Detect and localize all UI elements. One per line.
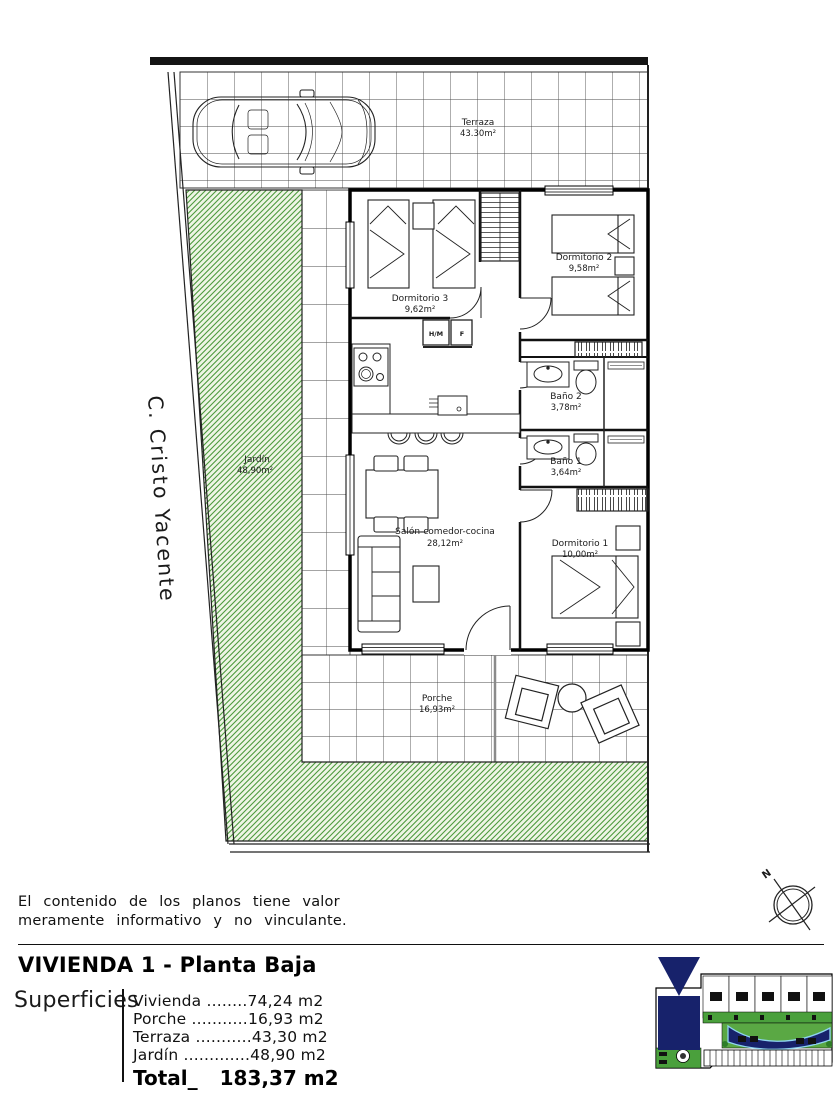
dorm3-area: 9,62m² — [405, 305, 436, 315]
street-label: C. Cristo Yacente — [143, 395, 180, 603]
porche-label: Porche — [422, 694, 453, 704]
floor-plan-svg: Terraza 43.30m² Dormitorio 3 9,62m² Dorm… — [0, 0, 840, 950]
disclaimer: El contenido de los planos tiene valor m… — [18, 893, 347, 931]
dorm1-label: Dormitorio 1 — [552, 539, 609, 549]
jardin-label: Jardín — [243, 455, 270, 465]
surface-row: Porche ...........16,93 m2 — [133, 1010, 328, 1028]
surfaces-divider-bar — [122, 989, 124, 1082]
salon-label: Salón-comedor-cocina — [395, 526, 495, 537]
surface-row: Jardín .............48,90 m2 — [133, 1046, 328, 1064]
compass-icon: N — [760, 868, 815, 930]
compass-n-label: N — [760, 868, 773, 882]
disclaimer-line2: meramente informativo y no vinculante. — [18, 912, 347, 931]
highlighted-unit — [658, 996, 700, 1050]
floor-plan: Terraza 43.30m² Dormitorio 3 9,62m² Dorm… — [0, 0, 840, 954]
surface-row: Vivienda ........74,24 m2 — [133, 992, 328, 1010]
bano1-area: 3,64m² — [551, 468, 582, 478]
dorm2-area: 9,58m² — [569, 264, 600, 274]
bano2-area: 3,78m² — [551, 403, 582, 413]
total-row: Total_183,37 m2 — [133, 1066, 339, 1090]
surfaces-heading: Superficies — [14, 988, 139, 1013]
dorm1-area: 10,00m² — [562, 550, 598, 560]
divider-line — [18, 944, 824, 945]
dorm2-label: Dormitorio 2 — [556, 253, 613, 263]
jardin-area: 48,90m² — [237, 466, 273, 476]
surface-row: Terraza ...........43,30 m2 — [133, 1028, 328, 1046]
walkway-tiles — [302, 190, 350, 655]
total-value: 183,37 m2 — [220, 1066, 339, 1090]
dorm3-label: Dormitorio 3 — [392, 294, 449, 304]
terraza-tiles — [180, 72, 648, 188]
terraza-area: 43.30m² — [460, 129, 496, 139]
appliance-hm-label: H/M — [429, 330, 443, 338]
bano1-label: Baño 1 — [550, 457, 582, 467]
site-minimap — [646, 956, 836, 1072]
page-title: VIVIENDA 1 - Planta Baja — [18, 953, 317, 977]
total-label: Total_ — [133, 1066, 198, 1090]
terraza-label: Terraza — [461, 118, 495, 128]
surfaces-table: Vivienda ........74,24 m2 Porche .......… — [133, 992, 328, 1064]
salon-area: 28,12m² — [427, 539, 463, 549]
disclaimer-line1: El contenido de los planos tiene valor — [18, 893, 347, 912]
bano2-label: Baño 2 — [550, 392, 582, 402]
porche-area: 16,93m² — [419, 705, 455, 715]
appliance-f-label: F — [460, 330, 464, 338]
